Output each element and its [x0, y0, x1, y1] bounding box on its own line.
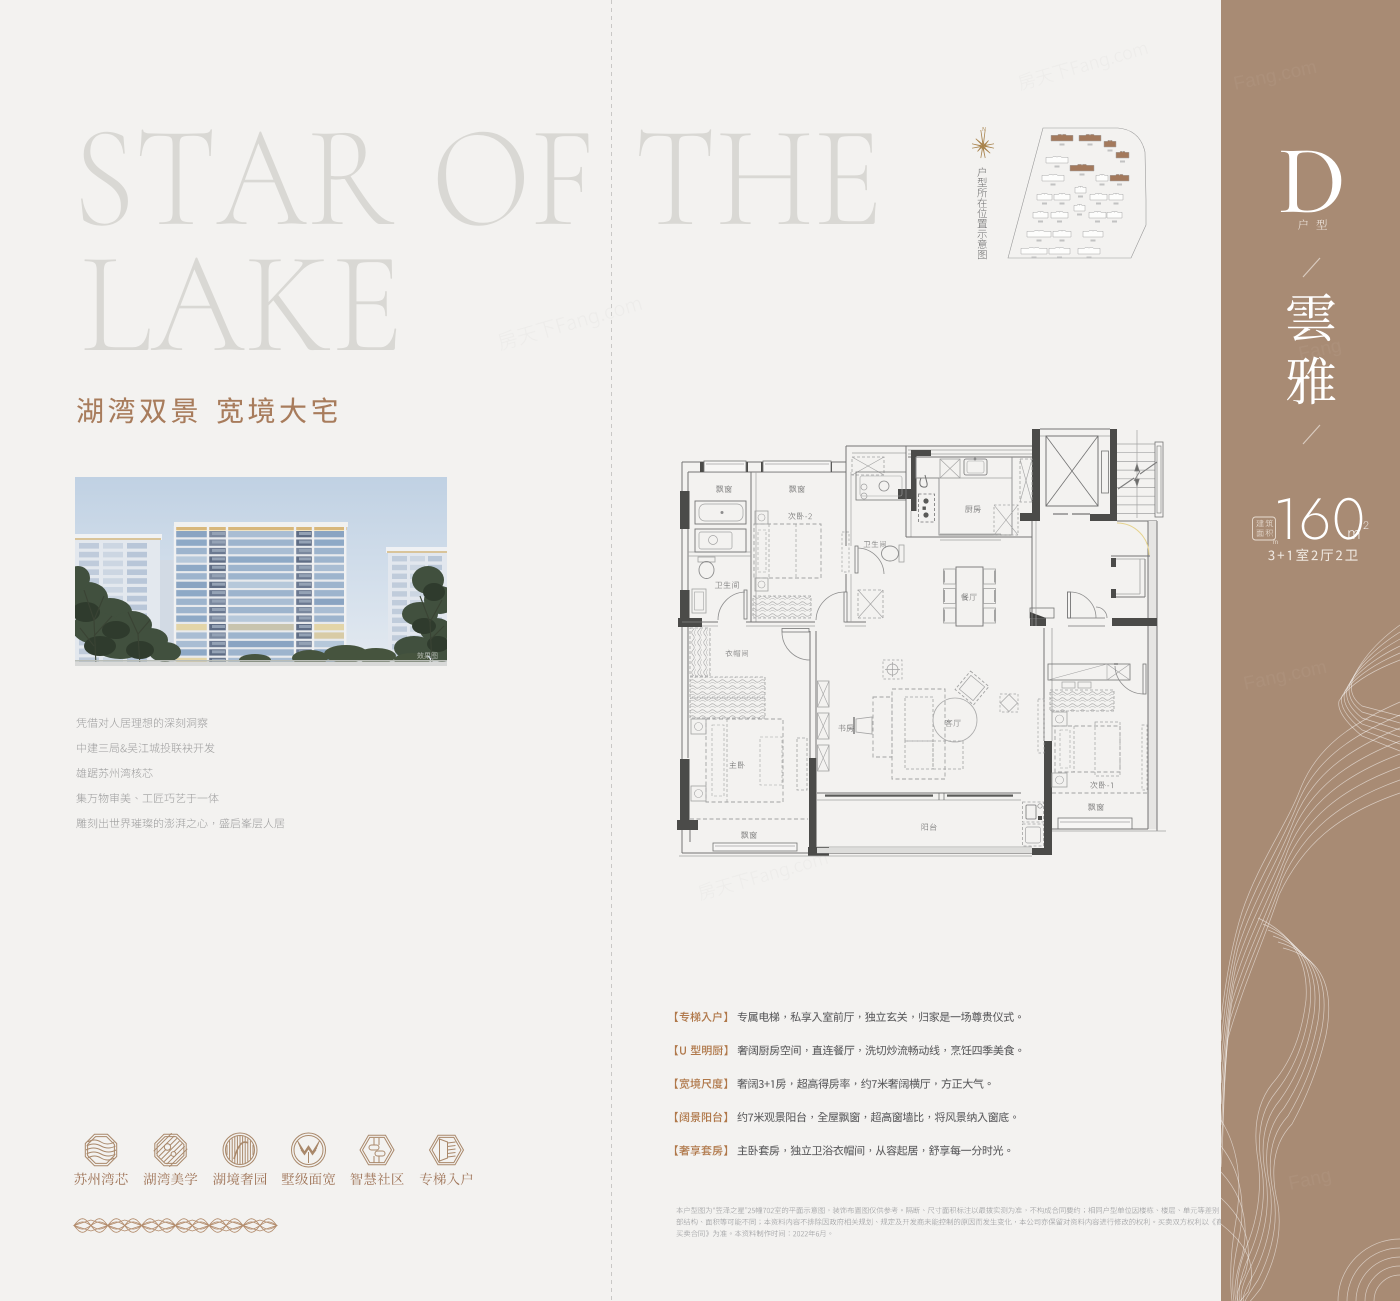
svg-text:N: N [982, 127, 986, 133]
svg-text:效果图: 效果图 [417, 651, 438, 660]
svg-text:m: m [1273, 540, 1278, 546]
